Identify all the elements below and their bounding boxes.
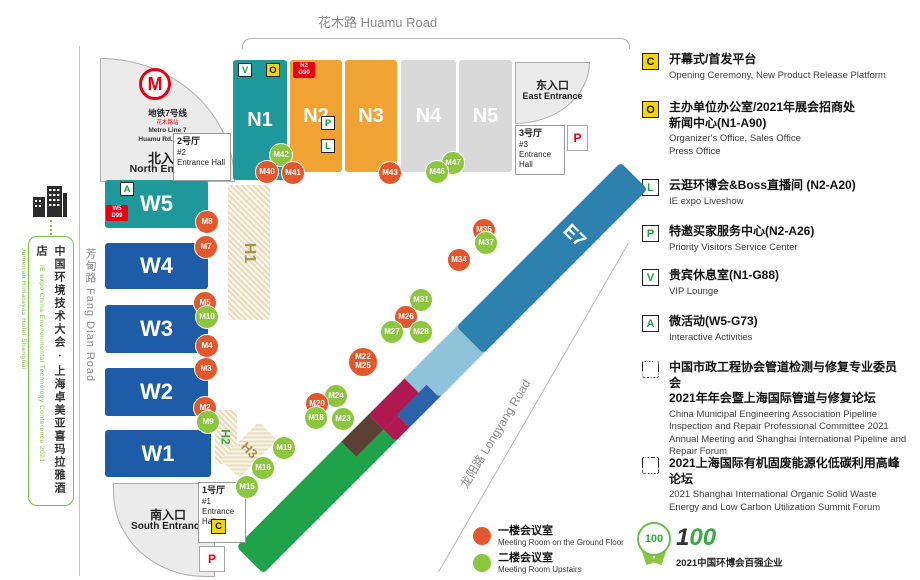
hall-w3-label: W3 [140, 316, 173, 342]
hall-w4-label: W4 [140, 253, 173, 279]
organizer-office-badge-map: O [266, 63, 280, 77]
hall-n3: N3 [345, 60, 397, 172]
legend-item-priority-visitors: P 特邀买家服务中心(N2-A26) Priority Visitors Ser… [642, 224, 814, 254]
marker-m34: M34 [447, 248, 471, 272]
marker-m43: M43 [378, 161, 402, 185]
w5-d99-line2: D99 [111, 213, 122, 220]
road-label-longyang: 龙阳路 Longyang Road [447, 361, 544, 507]
marker-m15: M15 [235, 475, 259, 499]
ground-floor-zh: 一楼会议室 [498, 522, 624, 538]
top100-logo-digit: 1 [676, 524, 689, 551]
hall-w2-label: W2 [140, 379, 173, 405]
w5-d99-line1: W5 [113, 206, 122, 213]
medal-number: 100 [645, 533, 663, 545]
entrance-hall-3-en: Entrance Hall [519, 150, 551, 169]
east-entrance-en: East Entrance [516, 91, 589, 101]
legend-organizer-en1: Organizer's Office, Sales Office [669, 133, 855, 146]
legend-item-solid-waste-forum: N2 G90 2021上海国际有机固废能源化低碳利用高峰论坛 2021 Shan… [642, 456, 909, 514]
legend-item-interactive-activities: A 微活动(W5-G73) Interactive Activities [642, 314, 758, 344]
hall-w1-label: W1 [142, 441, 175, 467]
legend-vip-zh: 贵宾休息室(N1-G88) [669, 268, 779, 284]
marker-m16: M16 [251, 456, 275, 480]
entrance-hall-2-en: Entrance Hall [177, 158, 225, 167]
marker-m3: M3 [194, 357, 218, 381]
hall-e7: E7 [500, 162, 647, 309]
entrance-hall-2-box: 2号厅 #2 Entrance Hall [173, 133, 231, 181]
legend-badge-p: P [642, 225, 659, 242]
marker-m7: M7 [194, 235, 218, 259]
legend-opening-en: Opening Ceremony, New Product Release Pl… [669, 70, 886, 83]
hall-w1: W1 [105, 430, 211, 477]
legend-n2-g90-line2: G90 [640, 466, 661, 478]
marker-m23: M23 [331, 407, 355, 431]
legend-w5-d99-line1: W5 [642, 357, 659, 369]
legend-organizer-en2: Press Office [669, 146, 855, 159]
marker-m22-m25: M22 M25 [348, 347, 378, 377]
legend-pipeline-en: China Municipal Engineering Association … [669, 409, 907, 459]
hall-h2-label: H2 [219, 429, 233, 444]
road-label-huamu: 花木路 Huamu Road [318, 12, 437, 31]
marker-m10: M10 [195, 305, 219, 329]
entrance-hall-2-zh: 2号厅 [177, 136, 227, 148]
vip-lounge-badge-map: V [238, 63, 252, 77]
marker-m40: M40 [255, 160, 279, 184]
legend-priority-en: Priority Visitors Service Center [669, 242, 814, 255]
marker-m19: M19 [272, 436, 296, 460]
top100-medal-icon: 100 [637, 522, 671, 556]
upstairs-legend: 二楼会议室 Meeting Room Upstairs [498, 549, 582, 574]
legend-badge-n2-g90: N2 G90 [642, 457, 659, 474]
ground-floor-dot [473, 527, 491, 545]
legend-priority-zh: 特邀买家服务中心(N2-A26) [669, 224, 814, 240]
entrance-hall-2-num: #2 [177, 148, 186, 157]
n2-g90-line2: G90 [298, 70, 309, 77]
top100-award-caption: 2021中国环博会百强企业 [676, 555, 783, 569]
hall-h1: H1 [228, 185, 270, 320]
east-entrance-area: 东入口 East Entrance [515, 62, 590, 124]
legend-vip-en: VIP Lounge [669, 286, 779, 299]
metro-station-zh: 花木路站 [101, 118, 234, 126]
legend-item-pipeline-forum: W5 D99 中国市政工程协会管道检测与修复专业委员会 2021年年会暨上海国际… [642, 360, 907, 459]
marker-m41: M41 [281, 161, 305, 185]
legend-activities-zh: 微活动(W5-G73) [669, 314, 758, 330]
marker-m28: M28 [409, 320, 433, 344]
w5-d99-forum-badge-map: W5 D99 [106, 205, 128, 221]
marker-m18: M18 [304, 406, 328, 430]
marker-m27: M27 [380, 320, 404, 344]
marker-m9: M9 [196, 410, 220, 434]
parking-badge-south: P [199, 546, 225, 572]
legend-badge-v: V [642, 269, 659, 286]
road-label-fangdian: 芳甸路 Fang Dian Road [82, 248, 98, 433]
legend-organizer-zh1: 主办单位办公室/2021年展会招商处 [669, 100, 855, 116]
hall-n5: N5 [459, 60, 512, 172]
entrance-hall-1-num: #1 [202, 497, 211, 506]
ground-floor-legend: 一楼会议室 Meeting Room on the Ground Floor [498, 522, 624, 547]
marker-m25-label: M25 [355, 362, 371, 371]
legend-liveshow-zh: 云逛环博会&Boss直播间 (N2-A20) [669, 178, 856, 194]
top100-logo: 100 [676, 524, 716, 552]
legend-badge-a: A [642, 315, 659, 332]
hall-n3-label: N3 [358, 105, 384, 128]
legend-liveshow-en: IE expo Liveshow [669, 196, 856, 209]
metro-logo: M [139, 68, 171, 100]
marker-m46: M46 [425, 160, 449, 184]
entrance-hall-3-zh: 3号厅 [519, 128, 561, 140]
entrance-hall-3-box: 3号厅 #3 Entrance Hall [515, 125, 565, 175]
legend-pipeline-zh1: 中国市政工程协会管道检测与修复专业委员会 [669, 360, 907, 391]
hall-w5-label: W5 [140, 191, 173, 217]
legend-n2-g90-line1: N2 [643, 453, 657, 465]
interactive-activities-badge-map: A [120, 182, 134, 196]
hall-n4-label: N4 [416, 105, 442, 128]
hall-h1-label: H1 [240, 242, 258, 262]
legend-badge-c: C [642, 53, 659, 70]
n2-g90-forum-badge-map: N2 G90 [293, 62, 315, 78]
upstairs-dot [473, 554, 491, 572]
legend-waste-en: 2021 Shanghai International Organic Soli… [669, 489, 909, 514]
marker-m37: M37 [474, 231, 498, 255]
top100-logo-zeros: 00 [689, 524, 716, 551]
hall-e7-label: E7 [558, 220, 590, 252]
ground-floor-en: Meeting Room on the Ground Floor [498, 538, 624, 547]
legend-panel: C 开幕式/首发平台 Opening Ceremony, New Product… [642, 0, 914, 580]
opening-ceremony-badge-map: C [211, 519, 226, 534]
upstairs-en: Meeting Room Upstairs [498, 565, 582, 574]
expo-floor-map-page: { "roads": { "huamu": "花木路 Huamu Road", … [0, 0, 920, 580]
n2-g90-line1: N2 [300, 63, 308, 70]
priority-visitors-badge-map: P [321, 116, 335, 130]
legend-badge-o: O [642, 101, 659, 118]
parking-badge-east: P [567, 125, 588, 151]
hall-n1-label: N1 [247, 109, 273, 132]
conference-hotel-en: Jumeirah Himalayas Hotel Shanghai [20, 248, 27, 370]
legend-badge-w5-d99: W5 D99 [642, 361, 659, 378]
legend-w5-d99-line2: D99 [640, 370, 660, 382]
hall-w3: W3 [105, 305, 208, 353]
legend-opening-zh: 开幕式/首发平台 [669, 52, 886, 68]
upstairs-zh: 二楼会议室 [498, 549, 582, 565]
liveshow-badge-map: L [321, 139, 335, 153]
legend-item-opening-ceremony: C 开幕式/首发平台 Opening Ceremony, New Product… [642, 52, 886, 82]
entrance-hall-3-num: #3 [519, 140, 528, 149]
connector-dotted-line [50, 220, 52, 235]
marker-m8: M8 [195, 210, 219, 234]
legend-activities-en: Interactive Activities [669, 332, 758, 345]
legend-item-liveshow: L 云逛环博会&Boss直播间 (N2-A20) IE expo Livesho… [642, 178, 856, 208]
hotel-building-icon [30, 183, 70, 224]
conference-info-box: 中国环境技术大会 · 上海卓美亚喜玛拉雅酒店 IE expo China Env… [28, 236, 74, 506]
road-line-fangdian [79, 46, 80, 576]
legend-organizer-zh2: 新闻中心(N1-A90) [669, 116, 855, 132]
legend-item-vip-lounge: V 贵宾休息室(N1-G88) VIP Lounge [642, 268, 779, 298]
legend-item-organizer-office: O 主办单位办公室/2021年展会招商处 新闻中心(N1-A90) Organi… [642, 100, 855, 158]
marker-m4: M4 [195, 334, 219, 358]
road-line-huamu [242, 38, 630, 49]
conference-title-en: IE expo China Environmental Technology C… [38, 265, 45, 462]
legend-waste-zh: 2021上海国际有机固废能源化低碳利用高峰论坛 [669, 456, 909, 487]
hall-n5-label: N5 [473, 105, 499, 128]
hall-w4: W4 [105, 243, 208, 289]
legend-pipeline-zh2: 2021年年会暨上海国际管道与修复论坛 [669, 391, 907, 407]
